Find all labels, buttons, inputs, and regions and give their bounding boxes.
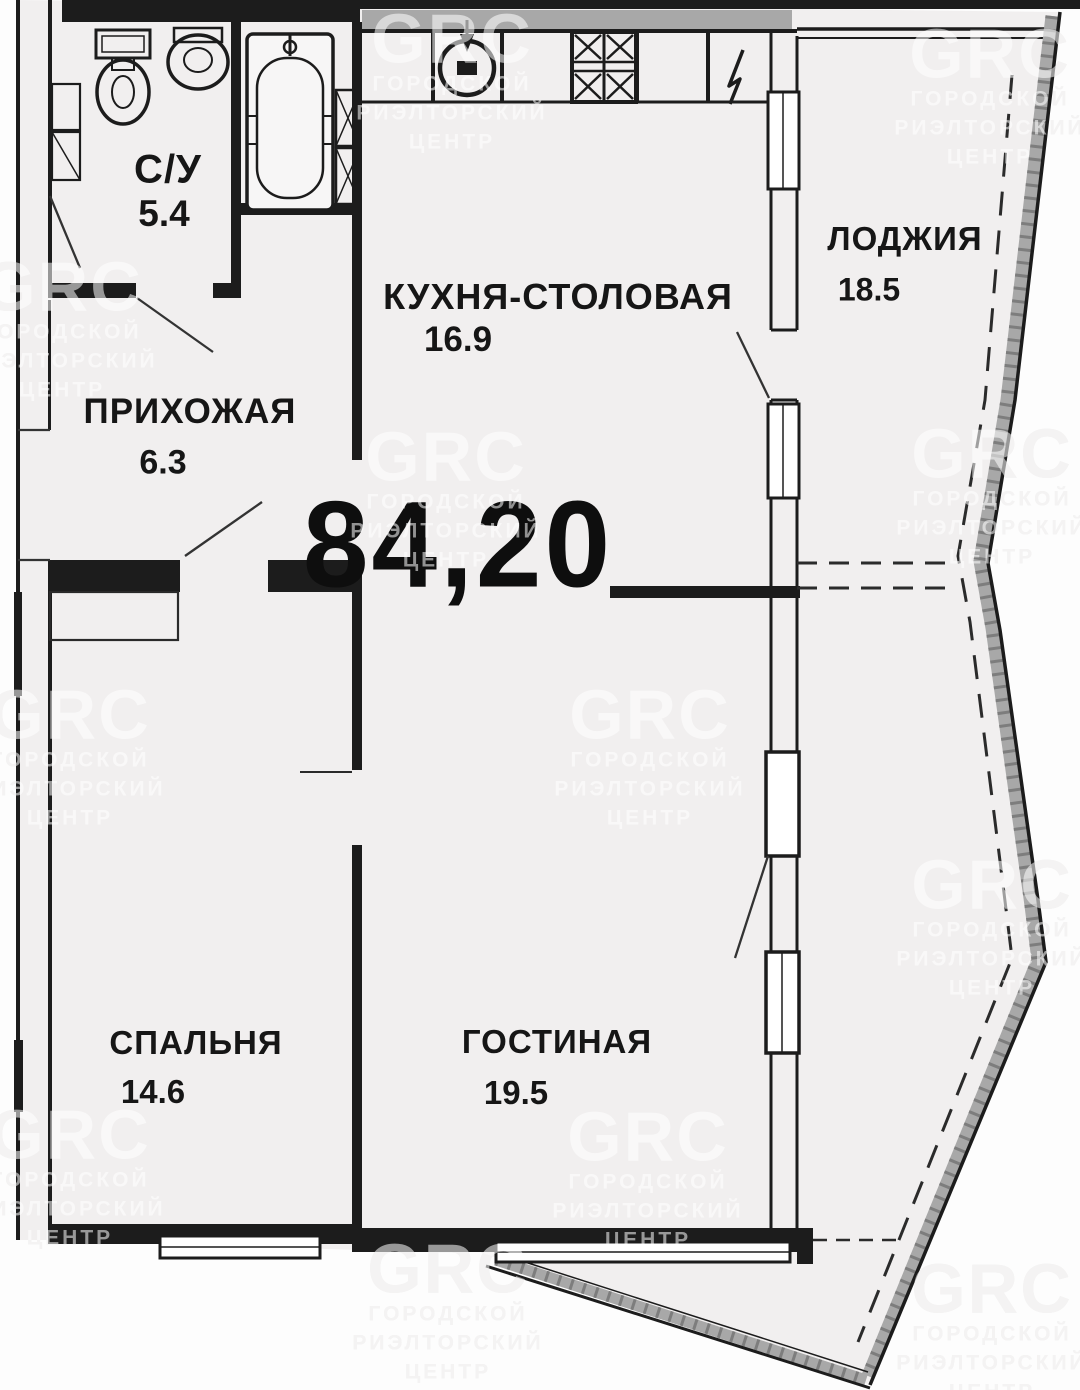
room-label-bedroom: СПАЛЬНЯ	[109, 1024, 282, 1062]
room-label-loggia: ЛОДЖИЯ	[827, 220, 982, 258]
bathtub-icon	[247, 34, 333, 210]
floorplan-canvas: С/У 5.4 ПРИХОЖАЯ 6.3 КУХНЯ-СТОЛОВАЯ 16.9…	[0, 0, 1080, 1390]
room-area-hallway: 6.3	[139, 444, 186, 483]
room-label-kitchen: КУХНЯ-СТОЛОВАЯ	[383, 276, 733, 318]
room-area-bathroom: 5.4	[138, 193, 189, 235]
total-area-value: 84,20	[303, 474, 613, 615]
room-area-bedroom: 14.6	[121, 1073, 185, 1111]
room-area-living-room: 19.5	[484, 1074, 548, 1112]
room-area-kitchen: 16.9	[424, 320, 492, 360]
room-label-living-room: ГОСТИНАЯ	[462, 1023, 652, 1061]
room-label-hallway: ПРИХОЖАЯ	[84, 392, 297, 432]
room-area-loggia: 18.5	[838, 272, 900, 309]
room-label-bathroom: С/У	[134, 148, 202, 193]
